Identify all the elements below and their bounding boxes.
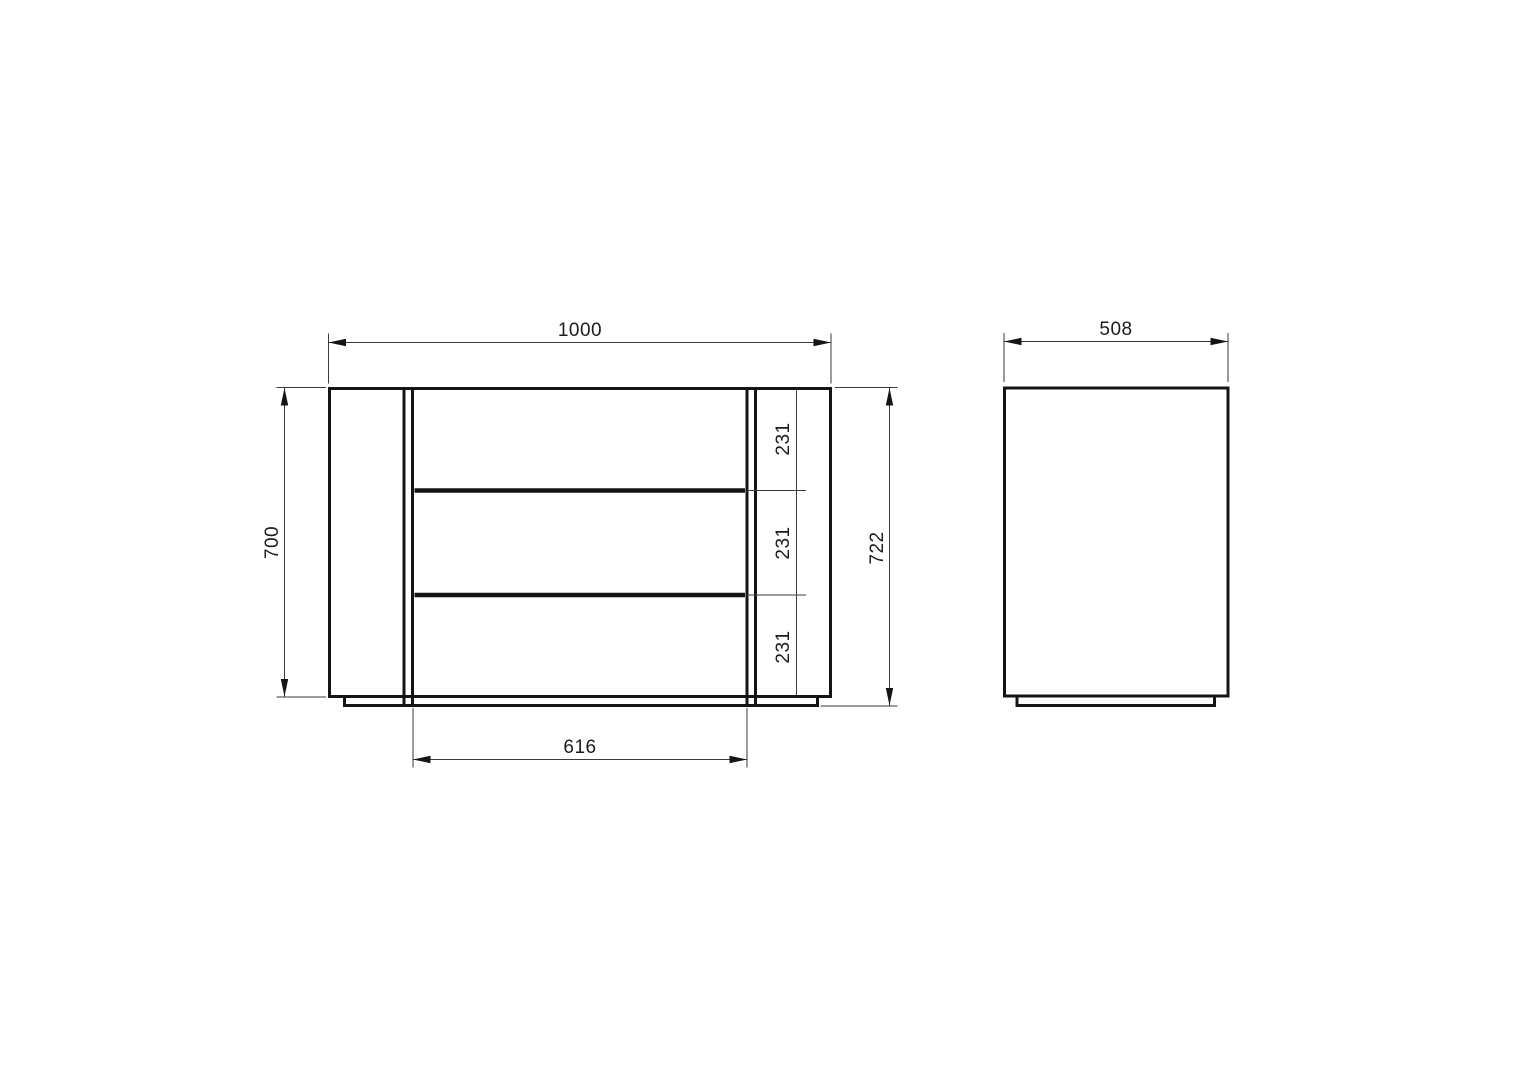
dim-drawer-width-value: 616 (563, 737, 596, 758)
dim-overall-height: 722 (821, 388, 898, 707)
dim-drawer1-height-value: 231 (773, 422, 794, 455)
dim-1000-arrow-right (814, 339, 832, 346)
dim-drawer2-height-value: 231 (773, 526, 794, 559)
dim-722-arrow-top (886, 388, 893, 406)
side-plinth (1017, 697, 1215, 706)
dim-1000-arrow-left (329, 339, 347, 346)
drawing-canvas: 1000 700 722 616 (0, 0, 1521, 1080)
dim-drawer-width: 616 (413, 708, 747, 768)
dim-overall-width-value: 1000 (558, 320, 602, 341)
dim-616-arrow-right (730, 756, 748, 763)
dim-616-arrow-left (413, 756, 431, 763)
dim-overall-height-value: 722 (867, 531, 888, 564)
dim-drawer3-height-value: 231 (773, 630, 794, 663)
side-view (1005, 388, 1229, 706)
dim-722-arrow-bottom (886, 688, 893, 706)
dim-overall-width: 1000 (329, 320, 832, 384)
dim-carcass-height-value: 700 (262, 526, 283, 559)
dim-700-arrow-top (281, 388, 288, 406)
dim-700-arrow-bottom (281, 679, 288, 697)
front-view (330, 389, 831, 706)
furniture-dimension-drawing: 1000 700 722 616 (0, 0, 1521, 1080)
side-carcass-outline (1005, 388, 1229, 696)
dim-depth-value: 508 (1099, 319, 1132, 340)
dim-depth: 508 (1004, 319, 1228, 382)
dim-carcass-height: 700 (262, 388, 326, 698)
dim-508-arrow-left (1004, 338, 1022, 345)
dim-508-arrow-right (1211, 338, 1229, 345)
